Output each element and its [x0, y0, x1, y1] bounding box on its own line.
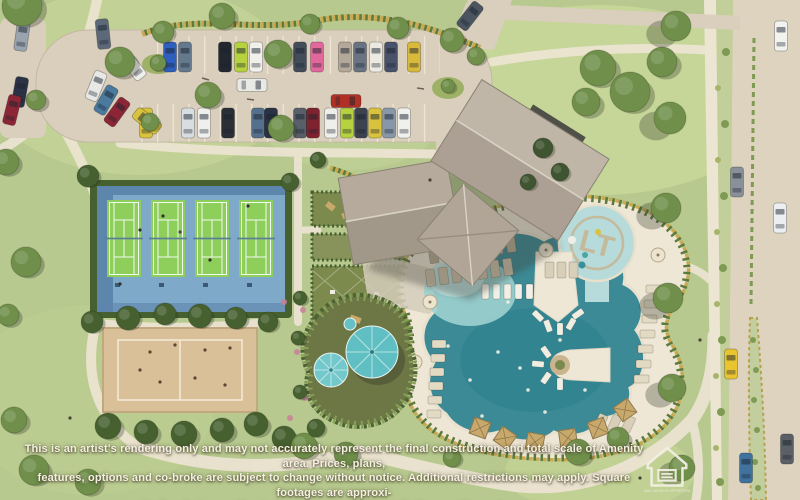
- car: [250, 42, 263, 72]
- car: [219, 42, 232, 72]
- car: [731, 167, 744, 197]
- swimmer: [558, 338, 562, 342]
- person: [223, 383, 226, 386]
- shrub: [720, 192, 728, 200]
- lounge-chair: [557, 378, 563, 390]
- car: [198, 108, 211, 138]
- car: [325, 108, 338, 138]
- person: [428, 178, 431, 181]
- equal-housing-opportunity-logo: EQUAL HOUSING OPPORTUNITY: [644, 444, 690, 498]
- flower-bed: [300, 307, 306, 313]
- person: [158, 380, 161, 383]
- car: [252, 108, 265, 138]
- tennis-court: [149, 200, 187, 287]
- car: [339, 42, 352, 72]
- shrub: [715, 157, 721, 163]
- car: [775, 21, 788, 51]
- site-plan-rendering: LT: [0, 0, 800, 500]
- car: [311, 42, 324, 72]
- person: [138, 228, 141, 231]
- person: [118, 282, 121, 285]
- car: [385, 42, 398, 72]
- flower-bed: [281, 299, 287, 305]
- person: [698, 338, 701, 341]
- shrub: [713, 373, 719, 379]
- main-road: [704, 0, 800, 500]
- car: [179, 42, 192, 72]
- disclaimer-text: This is an artist's rendering only and m…: [18, 442, 650, 500]
- car: [307, 108, 320, 138]
- shrub: [751, 397, 757, 403]
- logo-caption: EQUAL HOUSING OPPORTUNITY: [644, 489, 690, 493]
- shrub: [750, 337, 756, 343]
- patio-umbrella: [651, 248, 665, 262]
- swimmer: [583, 388, 587, 392]
- swimmer: [506, 300, 510, 304]
- car: [95, 18, 111, 49]
- swimmer: [543, 410, 547, 414]
- car: [383, 108, 396, 138]
- shrub: [713, 445, 719, 451]
- shrub: [719, 264, 727, 272]
- person: [208, 258, 211, 261]
- shrub: [721, 120, 729, 128]
- shrub: [722, 48, 730, 56]
- car: [355, 108, 368, 138]
- tennis-courts: [90, 180, 292, 318]
- shrub: [754, 427, 760, 433]
- person: [148, 350, 151, 353]
- lounge-chair-row: [545, 262, 578, 278]
- car: [354, 42, 367, 72]
- shrub: [718, 336, 726, 344]
- tennis-court: [237, 200, 275, 287]
- car: [235, 42, 248, 72]
- car: [781, 434, 794, 464]
- person: [228, 346, 231, 349]
- flower-bed: [287, 415, 293, 421]
- shrub: [717, 408, 725, 416]
- disclaimer-line-1: This is an artist's rendering only and m…: [18, 442, 650, 471]
- person: [178, 230, 181, 233]
- person: [193, 376, 196, 379]
- person: [161, 214, 164, 217]
- person: [203, 348, 206, 351]
- shrub: [716, 478, 724, 486]
- shrub: [753, 367, 759, 373]
- person: [246, 204, 249, 207]
- disclaimer-line-2: features, options and co-broke are subje…: [18, 471, 650, 500]
- car: [182, 108, 195, 138]
- swimmer: [446, 344, 450, 348]
- car: [370, 42, 383, 72]
- flower-bed: [294, 349, 300, 355]
- shrub: [752, 459, 758, 465]
- car: [222, 108, 235, 138]
- car: [408, 42, 421, 72]
- swimmer: [468, 378, 472, 382]
- swimmer: [518, 366, 522, 370]
- amenity-site-plan: LT: [0, 0, 800, 500]
- car: [237, 79, 267, 92]
- car: [740, 453, 753, 483]
- equal-sign-box-icon: [658, 470, 675, 481]
- lounge-chair: [532, 360, 544, 367]
- car: [369, 108, 382, 138]
- tennis-court: [193, 200, 231, 287]
- splash-feature: [344, 318, 356, 330]
- car: [331, 95, 361, 108]
- person: [68, 416, 71, 419]
- swimmer: [526, 388, 530, 392]
- shrub: [715, 85, 721, 91]
- lounge-chair: [557, 323, 563, 335]
- patio-umbrella: [423, 295, 437, 309]
- swimmer: [496, 350, 500, 354]
- tennis-court: [105, 200, 143, 287]
- shrub: [714, 301, 720, 307]
- swimmer: [480, 414, 484, 418]
- volleyball-court: [103, 328, 257, 412]
- shrub: [714, 229, 720, 235]
- car: [341, 108, 354, 138]
- shrub: [755, 485, 761, 491]
- shade-umbrella-small: [314, 353, 348, 387]
- car: [398, 108, 411, 138]
- car: [725, 349, 738, 379]
- car: [774, 203, 787, 233]
- person: [138, 368, 141, 371]
- person: [173, 343, 176, 346]
